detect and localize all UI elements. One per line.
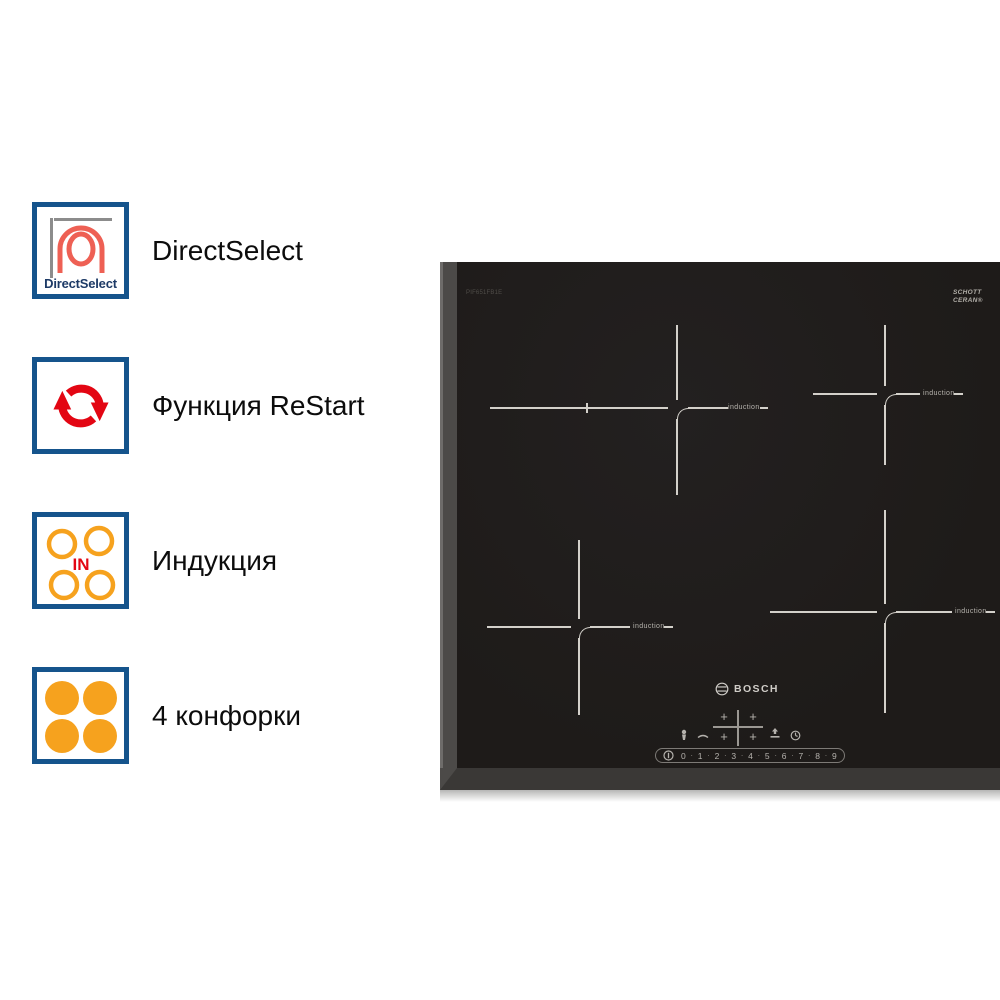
- zone-select-plus-back-right: +: [747, 711, 759, 723]
- zone-bottom-arm-back-left: [676, 419, 678, 495]
- zone-top-arm-back-right: [884, 325, 886, 386]
- zone-label-dash-back-right: [954, 393, 963, 395]
- feature-label-induction: Индукция: [152, 545, 277, 577]
- power-level-7: 7: [798, 751, 803, 761]
- zone-bottom-arm-front-right: [884, 623, 886, 713]
- zone-label-dash-front-left: [664, 626, 673, 628]
- power-level-4: 4: [748, 751, 753, 761]
- zone-select-plus-front-right: +: [747, 731, 759, 743]
- four-burners-icon: [37, 672, 124, 759]
- induction-badge-caption: IN: [73, 555, 90, 574]
- zone-left-arm-front-left: [487, 626, 571, 628]
- zone-corner-arc-back-left: [677, 408, 688, 419]
- induction-rings-icon: IN: [37, 517, 124, 604]
- feature-label-burners: 4 конфорки: [152, 700, 301, 732]
- selector-divider-vertical: [737, 710, 739, 746]
- power-level-8: 8: [815, 751, 820, 761]
- level-separator-dot: ·: [791, 752, 794, 760]
- level-separator-dot: ·: [741, 752, 744, 760]
- level-separator-dot: ·: [774, 752, 777, 760]
- bosch-emblem-icon: [715, 682, 729, 696]
- power-icon: [663, 750, 674, 761]
- power-level-0: 0: [681, 751, 686, 761]
- model-number-label: PIF651FB1E: [466, 290, 502, 296]
- induction-cooktop: PIF651FB1E SCHOTT CERAN® BOSCH + + + +: [440, 262, 1000, 790]
- feature-label-directselect: DirectSelect: [152, 235, 303, 267]
- zone-right-arm-back-left: [688, 407, 728, 409]
- power-level-2: 2: [715, 751, 720, 761]
- zone-corner-arc-front-right: [885, 612, 896, 623]
- zone-top-arm-back-left: [676, 325, 678, 400]
- zone-corner-arc-back-right: [885, 394, 896, 405]
- cooktop-glass: PIF651FB1E SCHOTT CERAN® BOSCH + + + +: [457, 262, 1000, 768]
- directselect-badge-caption: DirectSelect: [37, 276, 124, 291]
- zone-right-arm-front-right: [896, 611, 952, 613]
- power-level-1: 1: [698, 751, 703, 761]
- restart-badge: [32, 357, 129, 454]
- four-burners-badge: [32, 667, 129, 764]
- zone-tick-back-left: [586, 403, 588, 413]
- pan-boost-icon: [769, 728, 781, 739]
- power-level-5: 5: [765, 751, 770, 761]
- level-separator-dot: ·: [707, 752, 710, 760]
- zone-bottom-arm-back-right: [884, 405, 886, 465]
- zone-bottom-arm-front-left: [578, 638, 580, 715]
- zone-label-dash-back-left: [760, 407, 768, 409]
- selector-divider-horizontal: [713, 726, 763, 728]
- hob-bevel-highlight: [440, 262, 443, 768]
- timer-icon: [790, 730, 801, 741]
- wipe-protection-icon: [697, 733, 709, 740]
- level-separator-dot: ·: [758, 752, 761, 760]
- zone-induction-label-front-right: induction: [955, 608, 987, 616]
- bosch-logo: BOSCH: [715, 682, 779, 696]
- zone-label-dash-front-right: [986, 611, 995, 613]
- feature-restart: Функция ReStart: [32, 357, 365, 454]
- zone-right-arm-front-left: [590, 626, 630, 628]
- zone-induction-label-back-right: induction: [923, 390, 955, 398]
- cooktop-shadow: [440, 790, 1000, 802]
- power-level-9: 9: [832, 751, 837, 761]
- zone-corner-arc-front-left: [579, 627, 590, 638]
- directselect-coil-icon: [52, 219, 110, 275]
- schott-line: SCHOTT: [953, 289, 983, 297]
- zone-left-arm-back-left: [490, 407, 668, 409]
- child-lock-icon: [679, 729, 689, 741]
- power-level-6: 6: [782, 751, 787, 761]
- feature-directselect: DirectSelect DirectSelect: [32, 202, 303, 299]
- level-separator-dot: ·: [825, 752, 828, 760]
- power-level-scale: 0·1·2·3·4·5·6·7·8·9: [681, 751, 837, 761]
- feature-burners: 4 конфорки: [32, 667, 301, 764]
- zone-select-plus-back-left: +: [718, 711, 730, 723]
- schott-ceran-logo: SCHOTT CERAN®: [953, 289, 983, 305]
- feature-label-restart: Функция ReStart: [152, 390, 365, 422]
- restart-arrows-icon: [49, 374, 113, 438]
- zone-induction-label-back-left: induction: [728, 404, 760, 412]
- level-separator-dot: ·: [724, 752, 727, 760]
- power-level-3: 3: [731, 751, 736, 761]
- power-level-slider: 0·1·2·3·4·5·6·7·8·9: [655, 748, 845, 763]
- zone-induction-label-front-left: induction: [633, 623, 665, 631]
- zone-top-arm-front-left: [578, 540, 580, 619]
- directselect-frame-line: [50, 218, 53, 278]
- directselect-badge: DirectSelect: [32, 202, 129, 299]
- zone-left-arm-back-right: [813, 393, 877, 395]
- level-separator-dot: ·: [690, 752, 693, 760]
- feature-induction: IN Индукция: [32, 512, 277, 609]
- zone-right-arm-back-right: [896, 393, 920, 395]
- zone-left-arm-front-right: [770, 611, 877, 613]
- zone-top-arm-front-right: [884, 510, 886, 604]
- ceran-line: CERAN®: [953, 297, 983, 305]
- level-separator-dot: ·: [808, 752, 811, 760]
- directselect-frame-line: [54, 218, 112, 221]
- zone-select-plus-front-left: +: [718, 731, 730, 743]
- bosch-wordmark: BOSCH: [734, 683, 779, 695]
- induction-badge: IN: [32, 512, 129, 609]
